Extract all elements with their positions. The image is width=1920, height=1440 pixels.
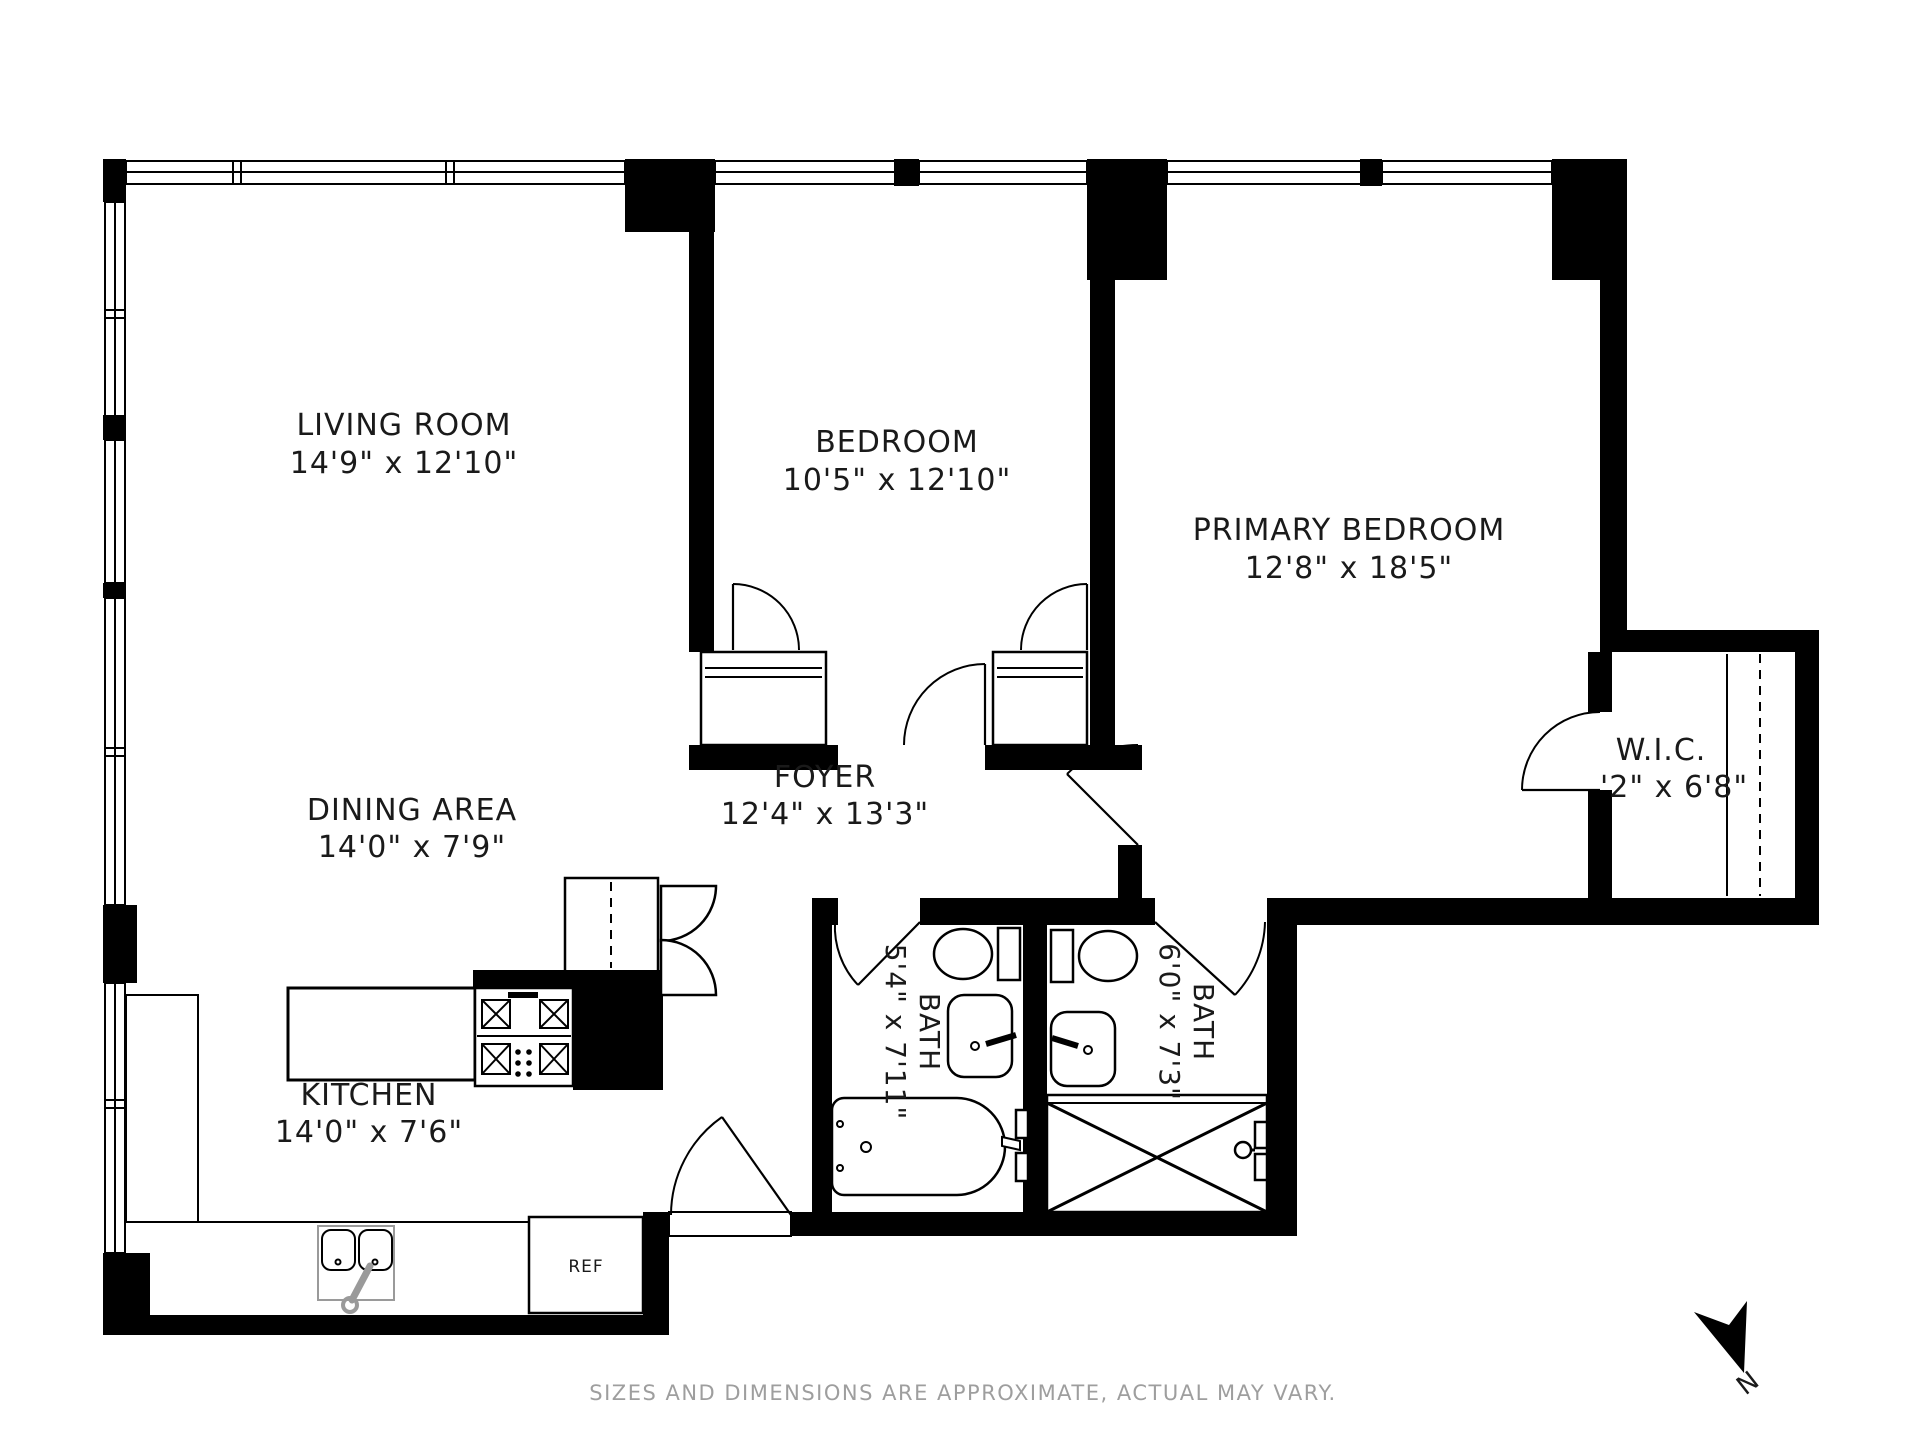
bedroom-closet-right — [993, 652, 1087, 745]
kitchen-name: KITCHEN — [301, 1078, 438, 1113]
window-top-living — [126, 161, 625, 184]
floor-plan: REF LIVING ROOM — [0, 0, 1920, 1440]
bath2-sink-icon — [1051, 1012, 1115, 1086]
shower-valve-icon — [1235, 1142, 1251, 1158]
pantry-door-top — [661, 886, 716, 941]
bath1-name: BATH — [913, 993, 946, 1071]
living-room-dims: 14'9" x 12'10" — [290, 446, 519, 481]
bath1-dims: 5'4" x 7'11" — [879, 944, 912, 1121]
entry-door — [669, 1117, 791, 1236]
shower-icon — [1047, 1095, 1267, 1212]
room-label-foyer: FOYER 12'4" x 13'3" — [721, 760, 929, 832]
room-label-dining: DINING AREA 14'0" x 7'9" — [307, 793, 517, 865]
dining-area-dims: 14'0" x 7'9" — [318, 830, 506, 865]
primary-bedroom-dims: 12'8" x 18'5" — [1245, 551, 1453, 586]
bath1-toilet-icon — [934, 928, 1020, 980]
bath1-sink-icon — [948, 995, 1016, 1077]
room-label-primary: PRIMARY BEDROOM 12'8" x 18'5" — [1193, 513, 1506, 586]
kitchen-island — [288, 988, 475, 1080]
room-label-bath1: BATH 5'4" x 7'11" — [879, 944, 946, 1121]
foyer-name: FOYER — [774, 760, 876, 795]
disclaimer-text: SIZES AND DIMENSIONS ARE APPROXIMATE, AC… — [589, 1381, 1336, 1405]
window-top-primary — [1167, 161, 1552, 184]
bedroom-dims: 10'5" x 12'10" — [783, 463, 1012, 498]
room-label-living: LIVING ROOM 14'9" x 12'10" — [290, 408, 519, 481]
faucet-icon — [352, 1266, 370, 1300]
bathtub-icon — [832, 1098, 1028, 1195]
window-left-kitchen — [105, 983, 125, 1253]
room-label-kitchen: KITCHEN 14'0" x 7'6" — [275, 1078, 463, 1150]
kitchen-sink-icon — [318, 1226, 394, 1312]
window-left-living — [105, 202, 125, 583]
bath2-toilet-icon — [1051, 930, 1137, 982]
room-label-bath2: BATH 6'0" x 7'3" — [1153, 943, 1220, 1101]
wic-name: W.I.C. — [1616, 733, 1707, 768]
refrigerator: REF — [529, 1217, 643, 1313]
bedroom-name: BEDROOM — [815, 425, 979, 460]
stove-icon — [475, 988, 573, 1086]
wic-dims: '2" x 6'8" — [1600, 770, 1748, 805]
floor-plan-page: REF LIVING ROOM — [0, 0, 1920, 1440]
kitchen-dims: 14'0" x 7'6" — [275, 1115, 463, 1150]
refrigerator-label: REF — [568, 1257, 603, 1277]
bath2-dims: 6'0" x 7'3" — [1153, 943, 1186, 1101]
closet-left-door — [733, 584, 799, 650]
wic-door — [1522, 712, 1600, 790]
closet-right-door — [1021, 584, 1087, 650]
window-left-dining — [105, 598, 125, 905]
living-room-name: LIVING ROOM — [296, 408, 511, 443]
room-label-bedroom: BEDROOM 10'5" x 12'10" — [783, 425, 1012, 498]
dining-area-name: DINING AREA — [307, 793, 517, 828]
foyer-dims: 12'4" x 13'3" — [721, 797, 929, 832]
bath2-name: BATH — [1187, 983, 1220, 1061]
pantry-door-bottom — [661, 940, 716, 995]
kitchen-counter-west — [126, 995, 198, 1222]
primary-bedroom-name: PRIMARY BEDROOM — [1193, 513, 1506, 548]
bedroom-door — [904, 664, 985, 745]
compass-north-label: N — [1731, 1366, 1765, 1402]
bedroom-closet-left — [701, 652, 826, 745]
room-label-wic: W.I.C. '2" x 6'8" — [1600, 733, 1748, 805]
north-arrow-icon: N — [1694, 1301, 1765, 1402]
